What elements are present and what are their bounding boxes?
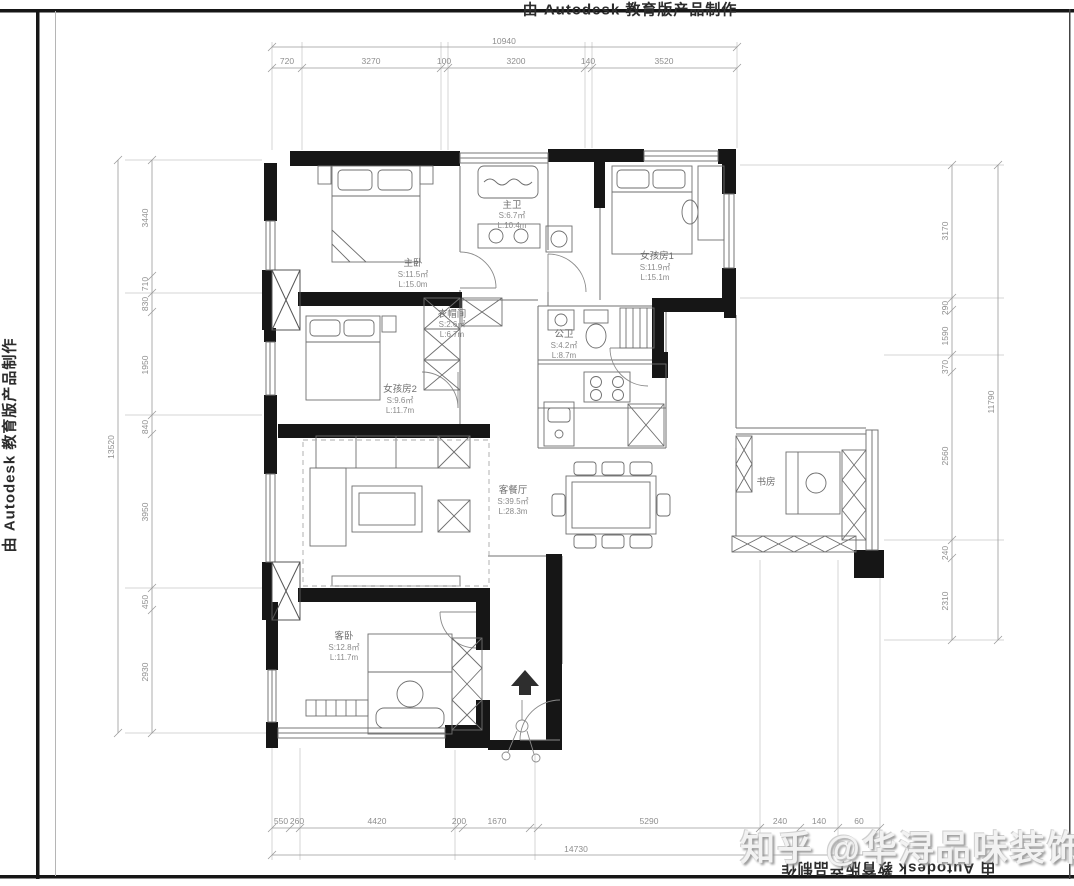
dim-bottom-total: 14730	[564, 844, 588, 854]
dim-left-seg: 3440	[140, 208, 150, 227]
room-area: S:4.2㎡	[551, 341, 578, 350]
room-length: L:11.7m	[386, 406, 415, 415]
dim-top-seg: 3270	[362, 56, 381, 66]
room-name: 客卧	[334, 630, 354, 642]
furniture-girl1-bed	[612, 166, 724, 254]
room-area: S:6.7㎡	[499, 211, 526, 220]
room-length: L:10.4m	[498, 221, 527, 230]
furniture-master-bath	[478, 166, 572, 252]
dim-left-seg: 710	[140, 277, 150, 291]
room-name: 书房	[756, 476, 775, 488]
furniture	[303, 166, 866, 762]
dim-top-seg: 100	[437, 56, 451, 66]
entry-arrow-icon	[511, 670, 539, 695]
room-length: L:11.7m	[330, 653, 359, 662]
dim-left-seg: 1950	[140, 355, 150, 374]
room-name: 客餐厅	[499, 484, 528, 496]
furniture-dining-table	[552, 462, 670, 548]
furniture-kitchen	[538, 364, 666, 446]
room-area: S:11.5㎡	[398, 270, 429, 279]
dim-top-seg: 140	[581, 56, 595, 66]
room-label-living: 客餐厅 S:39.5㎡ L:28.3m	[497, 484, 528, 516]
dim-right-seg: 2310	[940, 591, 950, 610]
door-girl1	[548, 254, 586, 292]
dim-bottom-seg: 200	[452, 816, 466, 826]
dim-left-seg: 450	[140, 595, 150, 609]
room-label-study: 书房	[756, 476, 775, 488]
dim-right-seg: 240	[940, 546, 950, 560]
dim-left-seg: 830	[140, 297, 150, 311]
room-label-public-bath: 公卫 S:4.2㎡ L:8.7m	[551, 329, 578, 360]
dim-left-total: 13520	[106, 435, 116, 459]
room-length: L:8.7m	[552, 351, 577, 360]
window-left-girl2	[266, 342, 275, 395]
room-length: L:15.1m	[641, 273, 670, 282]
door-public-bath	[610, 348, 648, 386]
window-top-2	[644, 151, 718, 161]
dim-top-total: 10940	[492, 36, 516, 46]
room-area: S:9.6㎡	[387, 396, 414, 405]
dim-top-seg: 3200	[507, 56, 526, 66]
floorplan-drawing: 10940 720 3270 100 3200 140 3520 550 260…	[0, 0, 1074, 886]
dim-bottom-seg: 4420	[368, 816, 387, 826]
room-name: 主卫	[502, 199, 522, 211]
room-name: 衣帽间	[438, 308, 467, 320]
window-bottom-guest	[278, 728, 445, 738]
dim-left-seg: 2930	[140, 662, 150, 681]
room-label-master-bath: 主卫 S:6.7㎡ L:10.4m	[498, 199, 527, 230]
dim-right-seg: 2560	[940, 446, 950, 465]
room-name: 主卧	[403, 257, 423, 269]
dim-right-total: 11790	[986, 390, 996, 413]
room-length: L:15.0m	[399, 280, 428, 289]
dimension-chain-left: 13520 3440 710 830 1950 840 3950 450 293…	[106, 156, 156, 737]
room-label-guest: 客卧 S:12.8㎡ L:11.7m	[328, 630, 359, 662]
window-right-study	[866, 430, 878, 550]
dim-right-seg: 290	[940, 301, 950, 315]
dim-left-seg: 3950	[140, 502, 150, 521]
dim-right-seg: 1590	[940, 326, 950, 345]
room-name: 女孩房2	[383, 383, 417, 395]
watermark-brand: 知乎 @华浔品味装饰	[740, 821, 1074, 872]
dim-bottom-seg: 5290	[640, 816, 659, 826]
window-left-guest	[268, 670, 276, 722]
door-guest	[440, 612, 476, 648]
dimension-chain-right: 11790 3170 290 1590 370 2560 240 2310	[940, 161, 1002, 644]
window-left-living	[266, 474, 275, 562]
furniture-master-bed	[318, 166, 433, 262]
watermark-top: 由 Autodesk 教育版产品制作	[523, 0, 738, 20]
room-length: L:28.3m	[499, 507, 528, 516]
room-name: 女孩房1	[640, 250, 674, 262]
dim-top-seg: 720	[280, 56, 294, 66]
dim-right-seg: 370	[940, 360, 950, 374]
dim-right-seg: 3170	[940, 221, 950, 240]
window-right-girl1	[724, 194, 734, 268]
window-top-1	[460, 153, 548, 163]
dim-left-seg: 840	[140, 420, 150, 434]
floorplan-page: { "watermarks": { "top": "由 Autodesk 教育版…	[0, 0, 1074, 886]
dimension-chain-top: 10940 720 3270 100 3200 140 3520	[268, 36, 741, 72]
room-label-girl1: 女孩房1 S:11.9㎡ L:15.1m	[640, 250, 674, 282]
dim-top-seg: 3520	[655, 56, 674, 66]
door-master	[460, 252, 496, 288]
room-label-cloak: 衣帽间 S:2.6㎡ L:6.7m	[438, 308, 467, 339]
room-area: S:11.9㎡	[640, 263, 671, 272]
room-area: S:12.8㎡	[328, 643, 359, 652]
room-name: 公卫	[554, 329, 574, 340]
dim-bottom-seg: 1670	[488, 816, 507, 826]
window-left-master	[266, 221, 275, 270]
room-area: S:2.6㎡	[439, 320, 466, 329]
furniture-living-sofa	[303, 436, 489, 586]
room-length: L:6.7m	[440, 330, 465, 339]
room-label-girl2: 女孩房2 S:9.6㎡ L:11.7m	[383, 383, 417, 415]
room-area: S:39.5㎡	[497, 497, 528, 506]
dim-bottom-seg: 260	[290, 816, 304, 826]
furniture-study	[732, 436, 866, 552]
dim-bottom-seg: 550	[274, 816, 288, 826]
watermark-left: 由 Autodesk 教育版产品制作	[0, 338, 20, 553]
